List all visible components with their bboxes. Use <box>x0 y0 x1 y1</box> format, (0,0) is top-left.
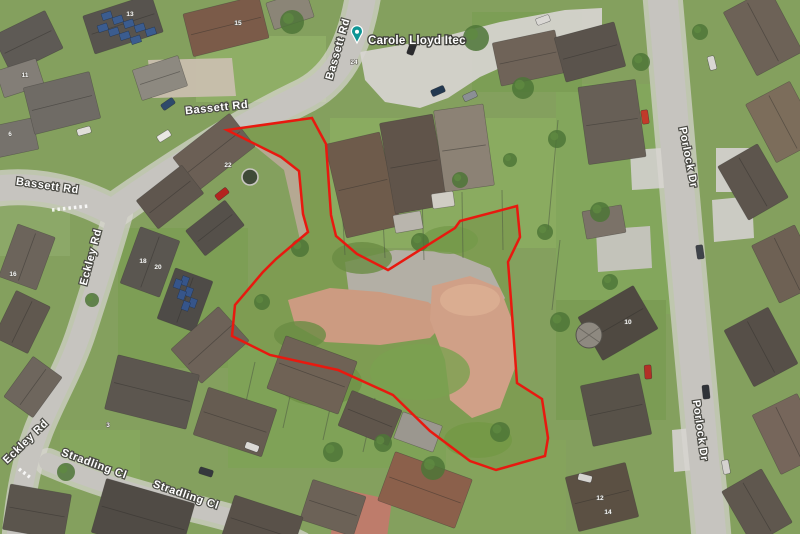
house-number: 22 <box>224 162 232 169</box>
satellite-map-view[interactable]: Bassett RdBassett RdBassett RdEckley RdE… <box>0 0 800 534</box>
site-scrub-clump <box>332 242 392 274</box>
tree-highlight <box>376 436 384 444</box>
tree-highlight <box>283 13 294 24</box>
trampoline <box>242 169 258 185</box>
house-number: 3 <box>106 422 110 429</box>
tree-highlight <box>326 445 335 454</box>
tree-highlight <box>493 425 502 434</box>
tree-highlight <box>256 296 263 303</box>
tree-highlight <box>505 155 511 161</box>
house-number: 12 <box>596 495 604 502</box>
house-roof <box>431 191 455 209</box>
parked-car <box>702 385 710 400</box>
tree-highlight <box>466 28 478 40</box>
tree-highlight <box>539 226 546 233</box>
tree-highlight <box>694 26 701 33</box>
house-number: 6 <box>8 131 12 138</box>
house-number: 13 <box>126 11 134 18</box>
tree-highlight <box>604 276 611 283</box>
aerial-imagery: Bassett RdBassett RdBassett RdEckley RdE… <box>0 0 800 534</box>
tree-highlight <box>454 174 461 181</box>
house-number: 15 <box>234 20 242 27</box>
tree-highlight <box>593 205 602 214</box>
house-number: 20 <box>154 264 162 271</box>
house-number: 11 <box>22 72 29 79</box>
tree-highlight <box>59 465 67 473</box>
house-number: 18 <box>139 258 147 265</box>
site-bare-earth-highlight <box>440 284 500 316</box>
pin-dot <box>355 30 359 34</box>
house-number: 10 <box>624 319 632 326</box>
tree-highlight <box>550 132 558 140</box>
tree-highlight <box>424 459 435 470</box>
tree-highlight <box>87 295 93 301</box>
tree-highlight <box>413 235 421 243</box>
house-number: 16 <box>9 271 17 278</box>
place-label[interactable]: Carole Lloyd Itec <box>368 35 466 47</box>
parked-car <box>644 365 652 379</box>
house-number: 14 <box>604 509 612 516</box>
tree-highlight <box>553 315 562 324</box>
tree-highlight <box>515 80 525 90</box>
house-number: 24 <box>350 59 358 66</box>
tree-highlight <box>634 55 642 63</box>
